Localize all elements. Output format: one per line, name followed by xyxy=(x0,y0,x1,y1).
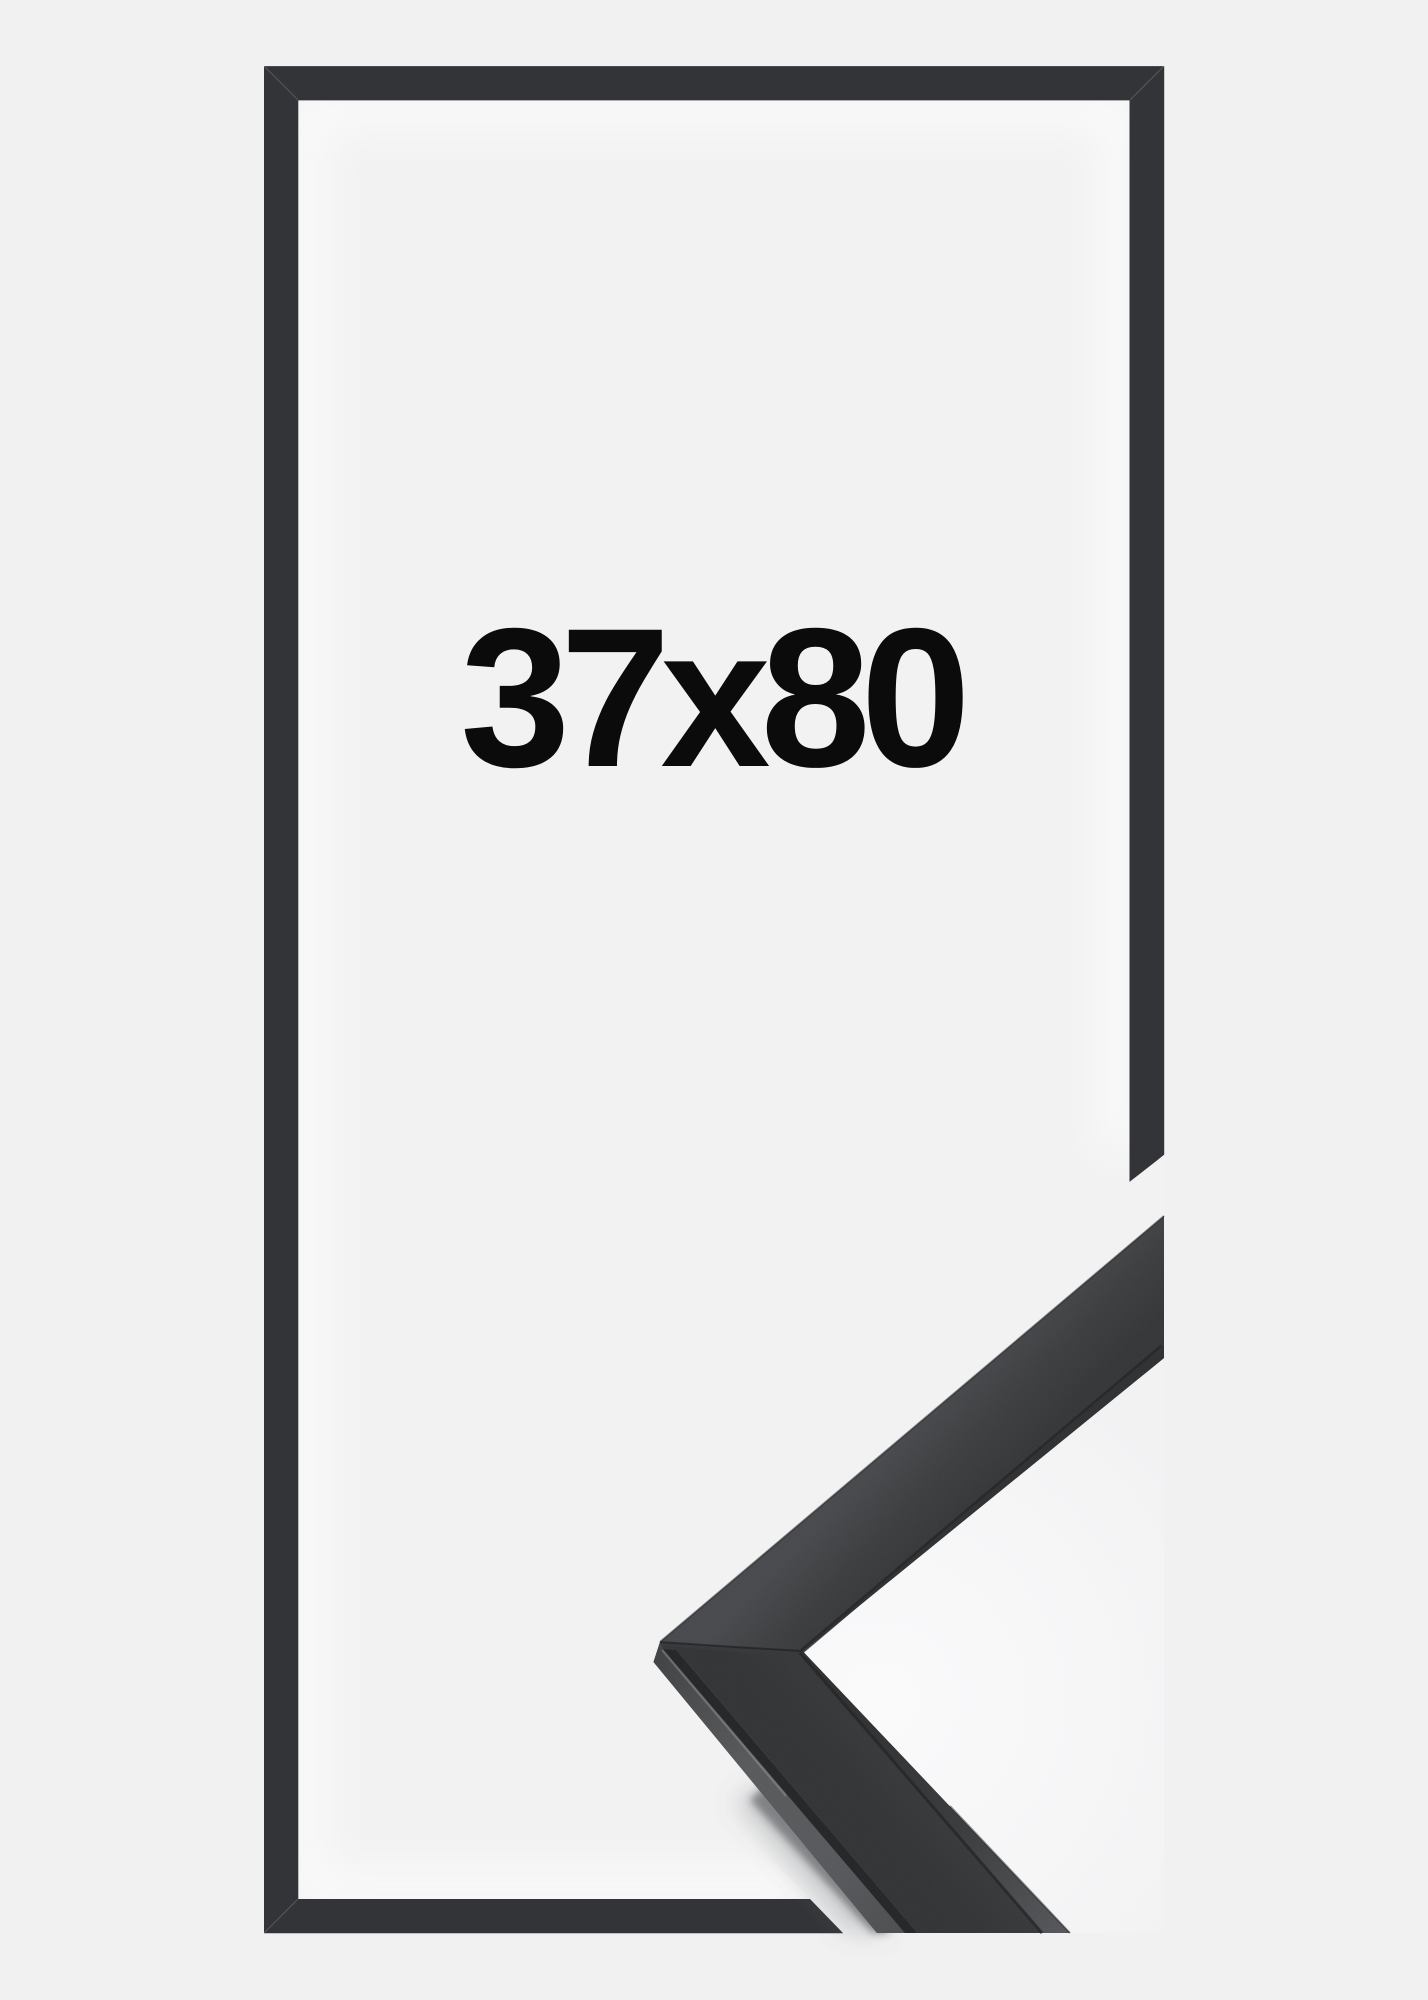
svg-text:37x80: 37x80 xyxy=(460,587,962,808)
